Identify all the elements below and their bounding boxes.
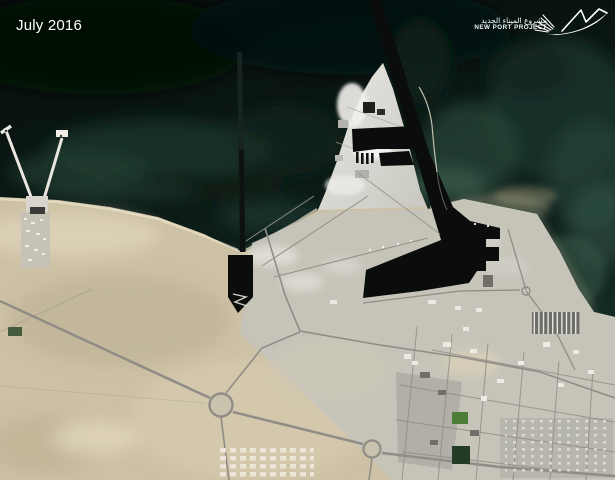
date-label: July 2016 (16, 17, 82, 34)
satellite-report-image: July 2016 مشروع الميناء الجديد NEW PORT … (0, 0, 615, 480)
logo-english-name: NEW PORT PROJECT (474, 25, 547, 32)
basin-side-building (483, 275, 493, 287)
roundabout-east (364, 441, 381, 458)
vegetation-patch (8, 327, 22, 336)
island-berth-basin-2 (379, 151, 414, 166)
island-building (363, 102, 375, 113)
dark-pond (452, 446, 470, 464)
satellite-scene (0, 0, 615, 480)
new-port-project-logo: مشروع الميناء الجديد NEW PORT PROJECT (483, 4, 611, 42)
island-building (377, 109, 385, 115)
island-berth-basin (352, 126, 415, 152)
warehouse-striped-cluster (532, 312, 580, 334)
labour-camp-grid (216, 448, 314, 480)
housing-grid (505, 420, 611, 476)
roundabout-west (210, 394, 233, 417)
green-field (452, 412, 468, 424)
